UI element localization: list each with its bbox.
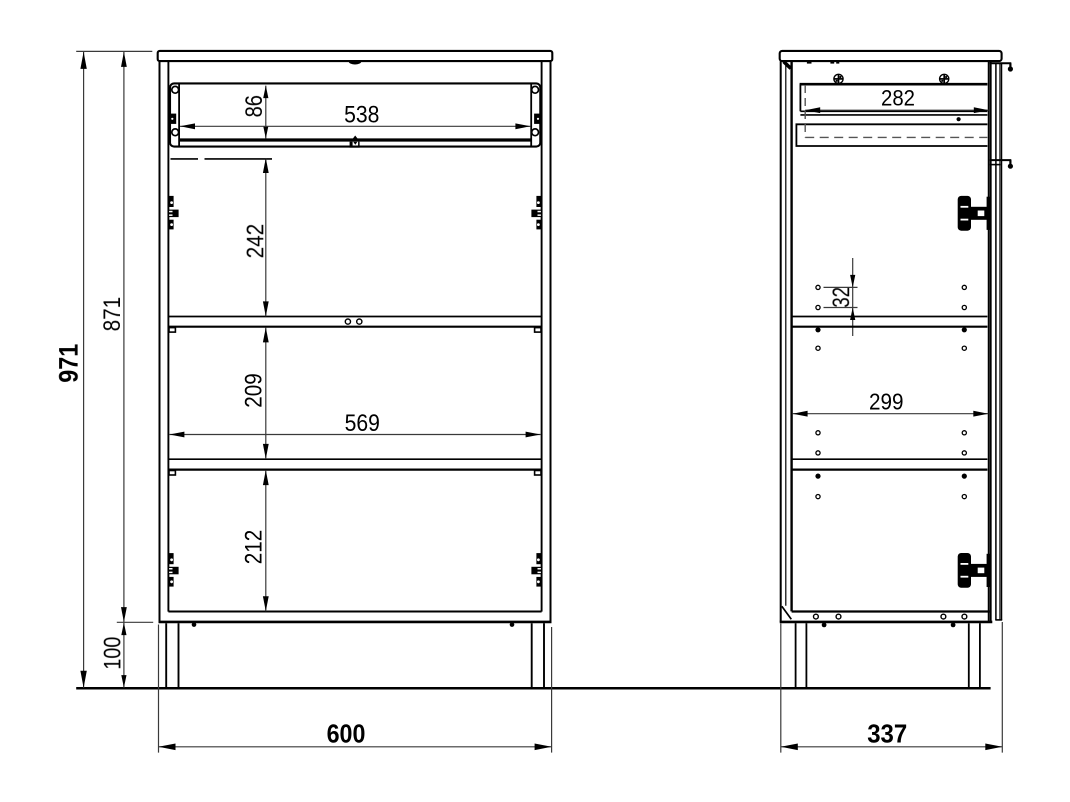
svg-text:212: 212 xyxy=(240,530,267,565)
svg-text:337: 337 xyxy=(867,719,907,749)
svg-text:971: 971 xyxy=(54,344,84,383)
svg-text:32: 32 xyxy=(828,287,855,308)
svg-text:538: 538 xyxy=(344,102,379,129)
svg-text:86: 86 xyxy=(241,95,268,118)
svg-text:242: 242 xyxy=(242,224,269,259)
svg-text:569: 569 xyxy=(345,410,380,437)
svg-text:871: 871 xyxy=(99,297,126,332)
svg-text:299: 299 xyxy=(869,389,904,415)
svg-text:100: 100 xyxy=(99,637,126,670)
svg-text:282: 282 xyxy=(881,85,915,110)
svg-text:209: 209 xyxy=(240,373,267,408)
svg-text:600: 600 xyxy=(327,718,366,748)
